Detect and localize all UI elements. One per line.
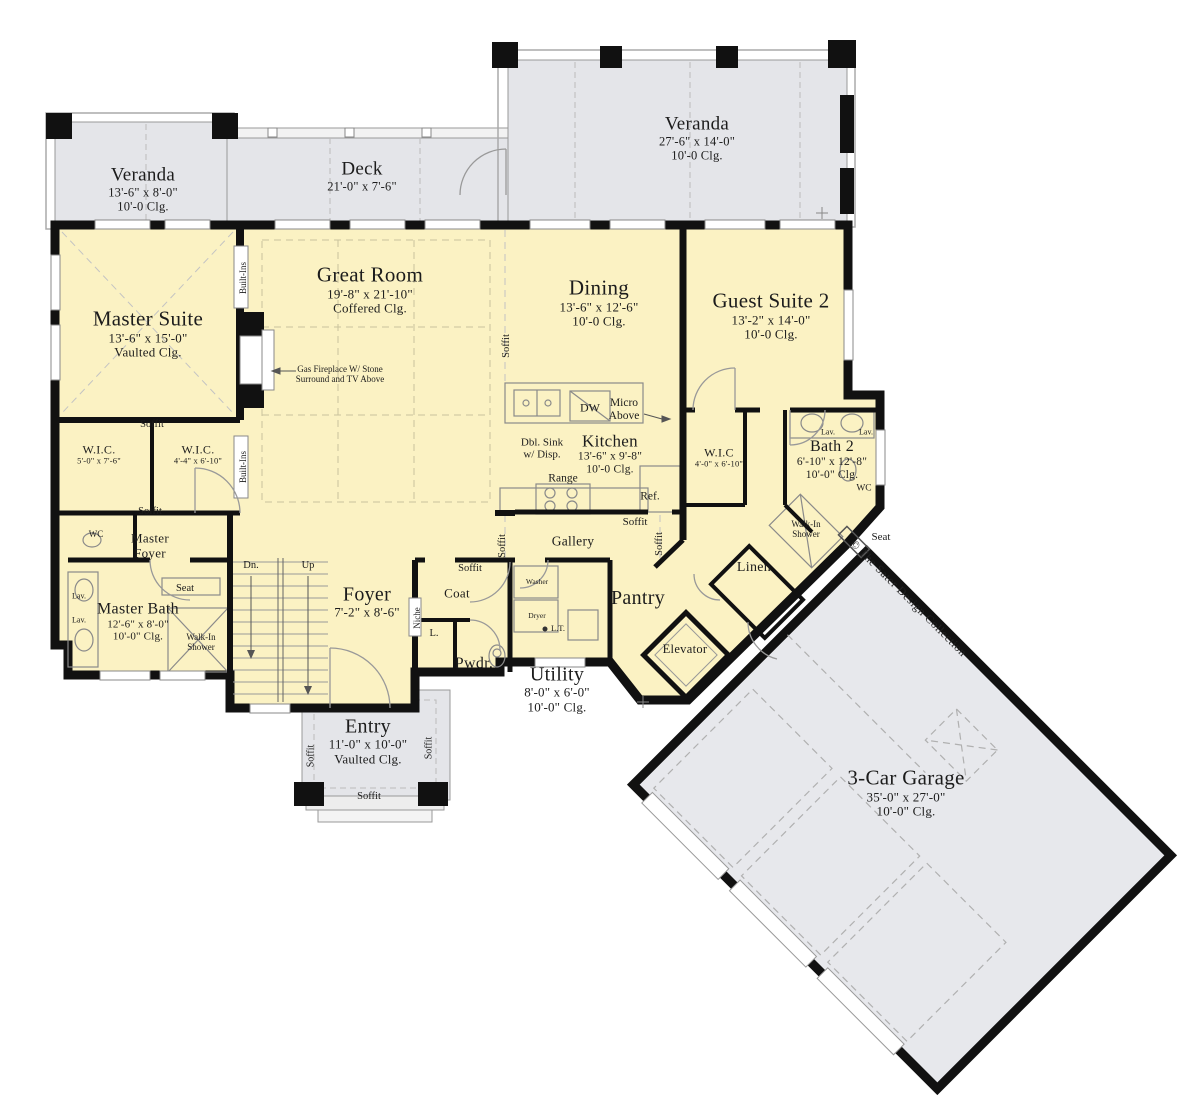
floor-plan: © The Sater Design Collection Veranda13'…: [0, 0, 1200, 1103]
veranda-left-area: [46, 113, 234, 229]
house-footprint: [55, 225, 880, 708]
veranda-right-area: [498, 50, 855, 227]
floor-plan-drawing: [0, 0, 1200, 1103]
deck-area: [227, 128, 508, 225]
niche-recess: [409, 598, 421, 636]
